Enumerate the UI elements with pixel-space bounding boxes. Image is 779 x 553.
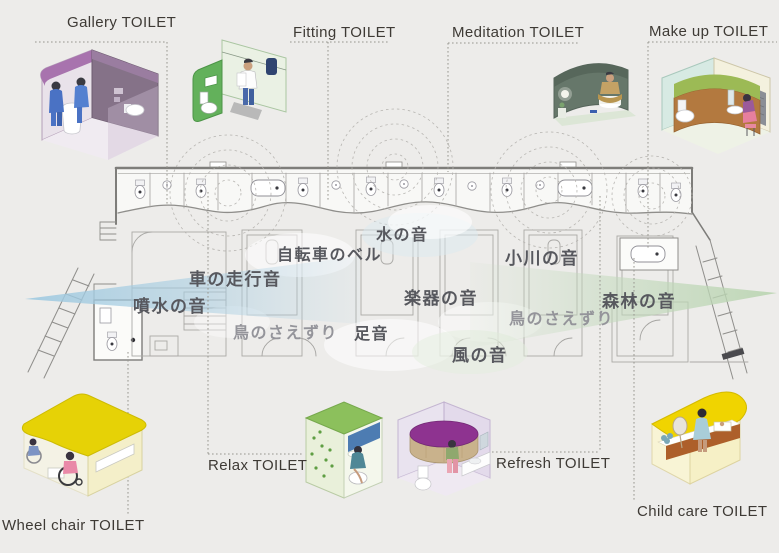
- makeup-toilet-illustration: [662, 58, 770, 154]
- sound-label-water: 水の音: [376, 221, 429, 245]
- sound-label-bicycle-bell: 自転車のベル: [277, 241, 382, 265]
- sound-label-instrument: 楽器の音: [404, 284, 478, 309]
- label-fitting-toilet: Fitting TOILET: [293, 24, 396, 41]
- sound-label-car-traffic: 車の走行音: [189, 265, 282, 290]
- relax-toilet-illustration: [306, 402, 382, 498]
- label-makeup-toilet: Make up TOILET: [649, 23, 768, 40]
- childcare-toilet-illustration: [652, 392, 747, 484]
- sound-label-fountain: 噴水の音: [133, 292, 207, 317]
- sound-label-birdsong-right: 鳥のさえずり: [509, 305, 614, 329]
- label-gallery-toilet: Gallery TOILET: [67, 14, 176, 31]
- label-relax-toilet: Relax TOILET: [208, 457, 307, 474]
- meditation-toilet-illustration: [554, 64, 636, 126]
- sound-label-footsteps: 足音: [354, 320, 389, 344]
- label-childcare-toilet: Child care TOILET: [637, 503, 767, 520]
- label-wheelchair-toilet: Wheel chair TOILET: [2, 517, 145, 534]
- refresh-toilet-illustration: [398, 402, 490, 496]
- sound-label-stream: 小川の音: [505, 244, 579, 269]
- label-refresh-toilet: Refresh TOILET: [496, 455, 610, 472]
- diagram-scene: [0, 0, 779, 553]
- sound-label-birdsong-left: 鳥のさえずり: [233, 319, 338, 343]
- toilet-concept-diagram: Gallery TOILET Fitting TOILET Meditation…: [0, 0, 779, 553]
- wheelchair-toilet-illustration: [22, 394, 146, 496]
- label-meditation-toilet: Meditation TOILET: [452, 24, 584, 41]
- sound-label-wind: 風の音: [452, 341, 508, 366]
- fitting-toilet-illustration: [193, 40, 286, 121]
- gallery-toilet-illustration: [41, 50, 158, 160]
